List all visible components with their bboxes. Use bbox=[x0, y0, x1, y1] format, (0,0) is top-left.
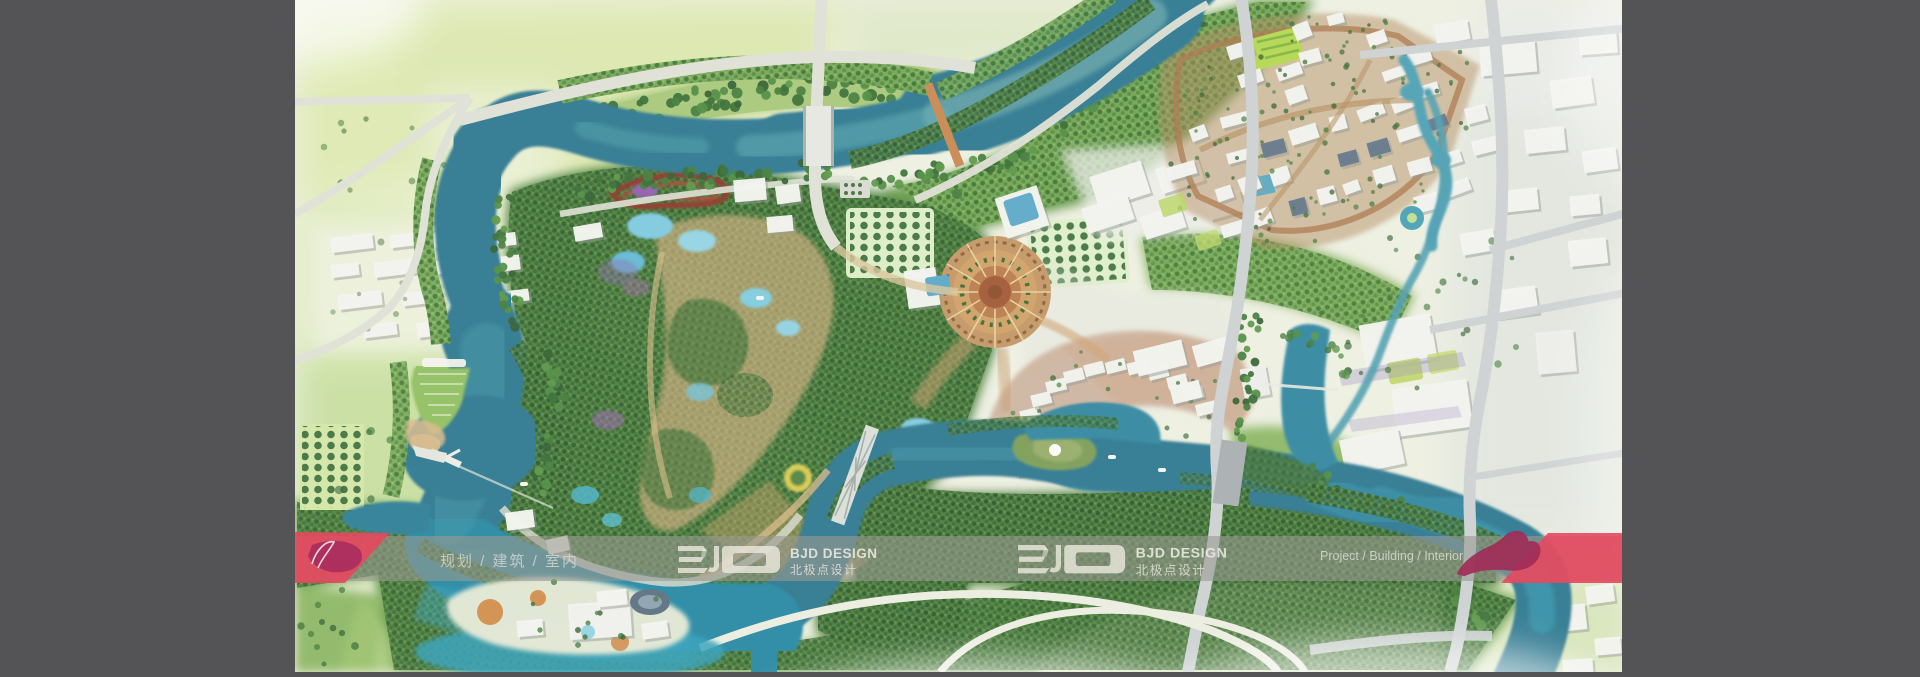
svg-text:北极点设计: 北极点设计 bbox=[790, 563, 858, 577]
svg-text:BJD DESIGN: BJD DESIGN bbox=[1136, 546, 1228, 562]
svg-text:北极点设计: 北极点设计 bbox=[1136, 563, 1207, 577]
svg-text:规划 / 建筑 / 室内: 规划 / 建筑 / 室内 bbox=[440, 553, 579, 570]
svg-text:BJD DESIGN: BJD DESIGN bbox=[790, 546, 878, 561]
svg-text:Project / Building / Interior: Project / Building / Interior bbox=[1320, 549, 1463, 563]
